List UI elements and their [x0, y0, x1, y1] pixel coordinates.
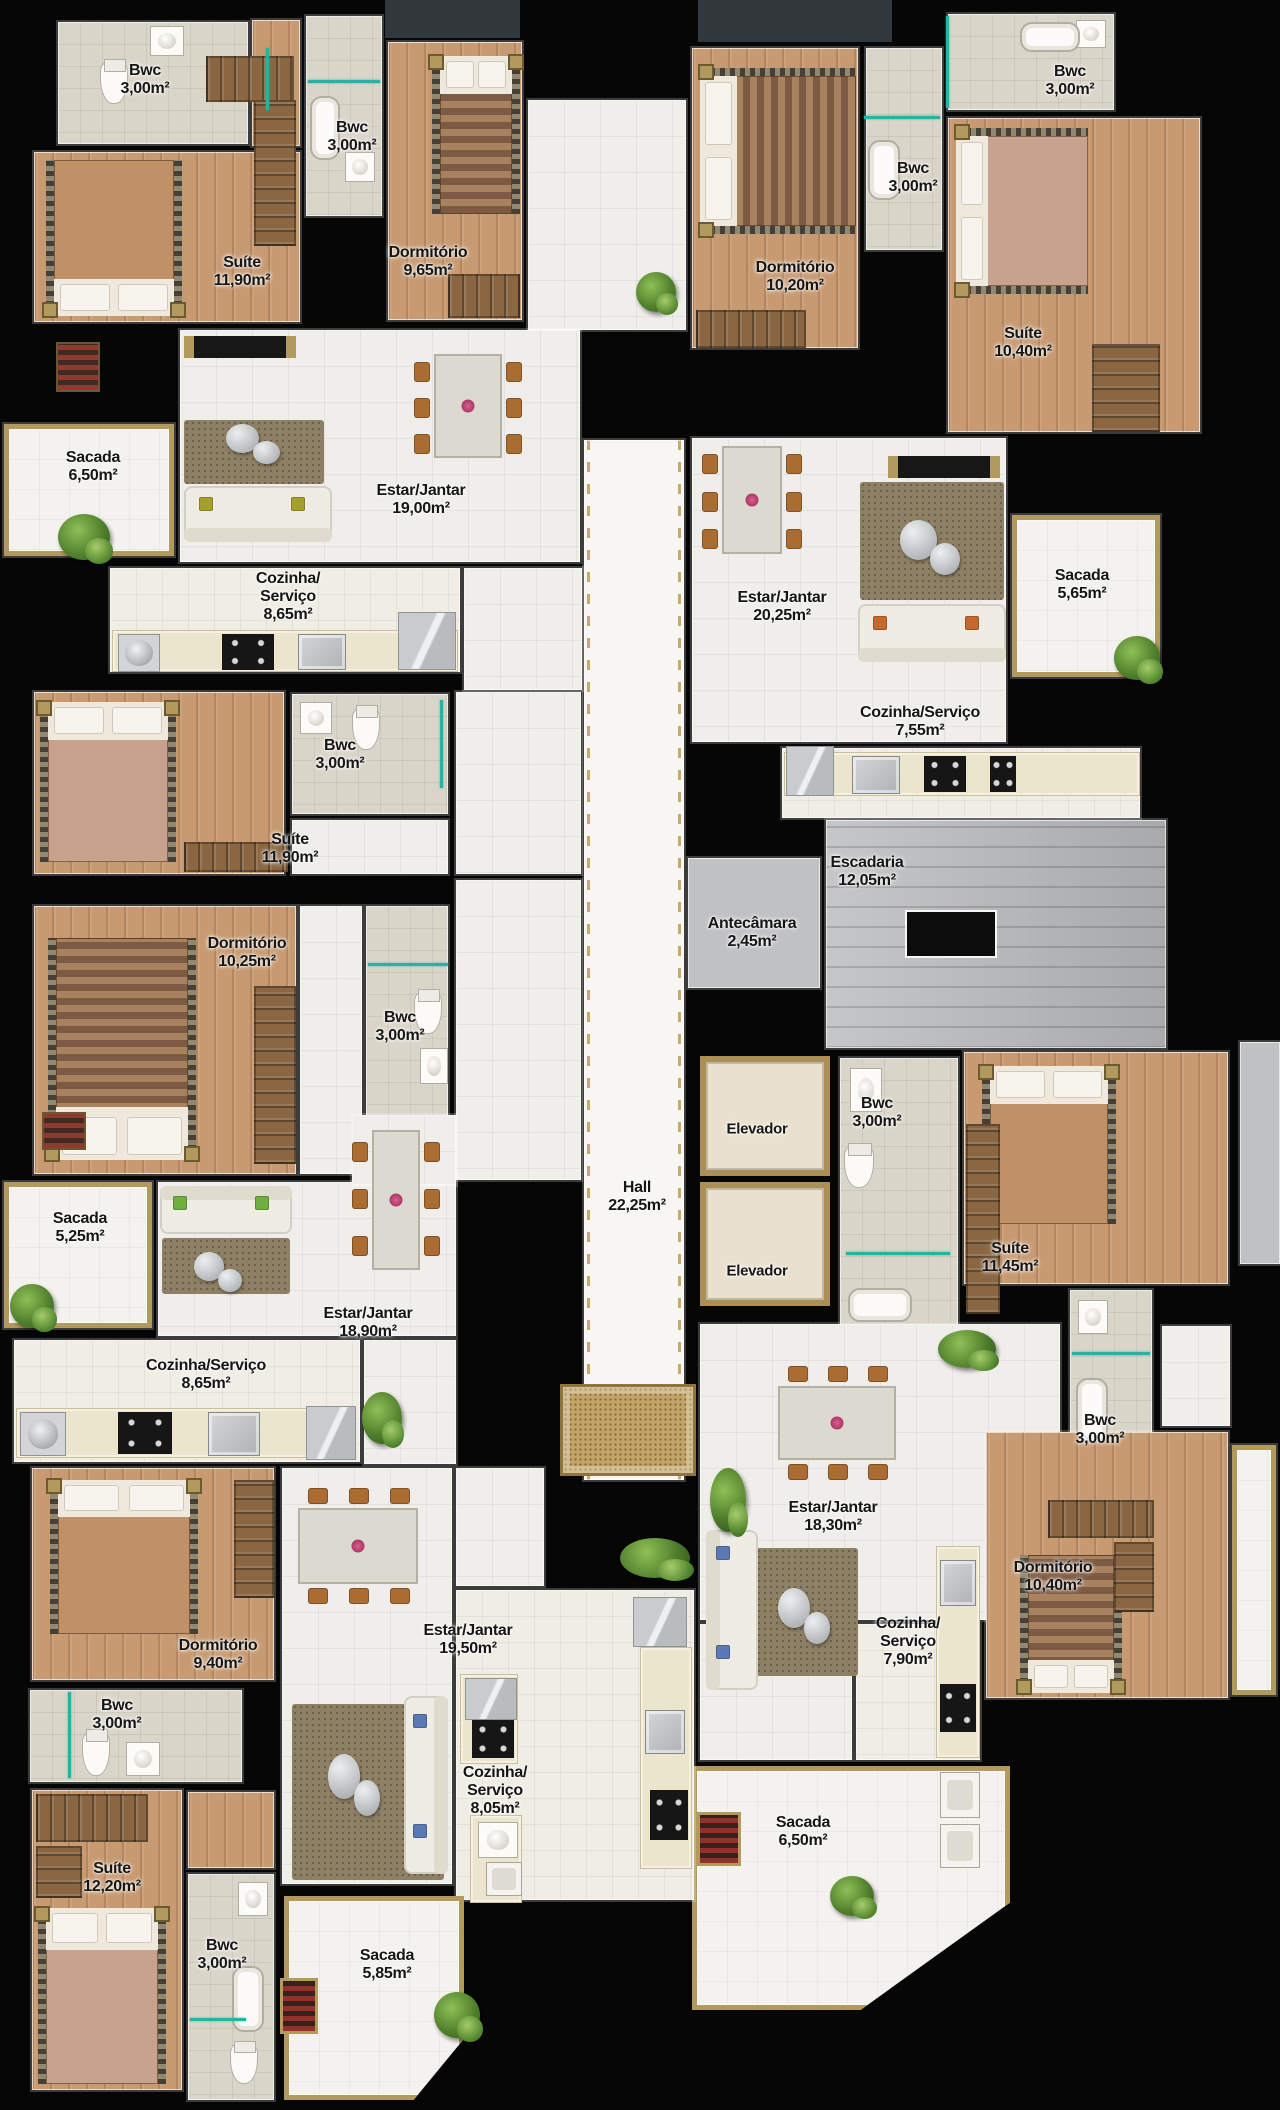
sinksq-icon: [300, 702, 332, 734]
sink-bowl-icon: [487, 1830, 508, 1849]
teal-icon: [368, 963, 448, 966]
label-line: 3,00m²: [328, 137, 377, 155]
label-line: 18,30m²: [789, 1517, 878, 1535]
label-line: Bwc: [121, 62, 170, 80]
pillow-icon: [705, 82, 732, 145]
label-line: 3,00m²: [853, 1113, 902, 1131]
label-escadaria: Escadaria12,05m²: [831, 854, 904, 890]
chair-icon: [308, 1588, 328, 1604]
sinksq-icon: [478, 1822, 518, 1858]
sink-icon: [645, 1710, 685, 1754]
chair-icon: [702, 454, 718, 474]
label-line: 10,25m²: [208, 953, 287, 971]
label-coz-e: Cozinha/Serviço8,05m²: [463, 1764, 527, 1818]
label-line: 6,50m²: [66, 467, 120, 485]
plant-icon: [710, 1468, 746, 1532]
label-line: Cozinha/Serviço: [860, 704, 980, 722]
teal-icon: [440, 700, 443, 788]
sink-bowl-icon: [352, 159, 368, 175]
label-line: Cozinha/: [256, 570, 320, 588]
label-dorm-a: Dormitório9,65m²: [389, 244, 468, 280]
stove-icon: [990, 756, 1016, 792]
rack-icon: [42, 1112, 86, 1150]
plant-icon: [58, 514, 110, 560]
nightstand-icon: [698, 222, 714, 238]
label-line: Dormitório: [389, 244, 468, 262]
sink-bowl-icon: [158, 33, 176, 49]
bed-pillows: [54, 707, 162, 734]
mat-icon: [560, 1384, 696, 1476]
wardrobe-icon: [696, 310, 806, 348]
label-line: 2,45m²: [708, 933, 797, 951]
label-line: Bwc: [198, 1937, 247, 1955]
throw-pillow-icon: [413, 1824, 427, 1838]
chair-icon: [868, 1366, 888, 1382]
label-coz-b: Cozinha/Serviço7,55m²: [860, 704, 980, 740]
sinksq-icon: [1078, 1300, 1108, 1334]
fridge-icon: [306, 1406, 356, 1460]
chair-icon: [506, 362, 522, 382]
sinksq-icon: [420, 1048, 448, 1084]
nightstand-icon: [36, 700, 52, 716]
plant-icon: [434, 1992, 480, 2038]
coffee-icon: [226, 424, 280, 464]
label-line: Estar/Jantar: [324, 1305, 413, 1323]
void-icon: [385, 0, 520, 38]
pillow-icon: [52, 1913, 98, 1943]
plant-icon: [636, 272, 676, 312]
wardrobe-icon: [206, 56, 294, 102]
label-line: 3,00m²: [889, 178, 938, 196]
label-line: Sacada: [53, 1210, 107, 1228]
teal-icon: [946, 16, 949, 108]
tub-icon: [1020, 22, 1080, 52]
label-sacada-e: Sacada5,85m²: [360, 1947, 414, 1983]
plant-leaf-icon: [656, 1559, 695, 1581]
label-line: Bwc: [1046, 63, 1095, 81]
chair-icon: [828, 1366, 848, 1382]
label-suite-d: Suíte11,45m²: [982, 1240, 1039, 1276]
throw-pillow-icon: [716, 1546, 730, 1560]
label-line: 12,20m²: [83, 1878, 141, 1896]
label-line: 10,20m²: [756, 277, 835, 295]
coffee-table-icon: [804, 1612, 830, 1644]
label-line: 9,40m²: [179, 1655, 258, 1673]
room-d-ledge: [1240, 1042, 1280, 1264]
wardrobe-icon: [1114, 1542, 1154, 1612]
label-sacada-d: Sacada6,50m²: [776, 1814, 830, 1850]
nightstand-icon: [170, 302, 186, 318]
wardrobe-icon: [254, 986, 296, 1164]
label-line: Bwc: [853, 1095, 902, 1113]
chair-icon: [352, 1236, 368, 1256]
sofa-backrest: [858, 648, 1006, 662]
wardrobe-icon: [448, 274, 520, 318]
plant-leaf-icon: [85, 538, 114, 563]
chair-icon: [702, 529, 718, 549]
wardrobe-icon: [1092, 344, 1160, 432]
room-a-foyer: [464, 568, 582, 690]
coffee-icon: [328, 1754, 380, 1816]
sinksq-icon: [345, 152, 375, 182]
label-line: Estar/Jantar: [789, 1499, 878, 1517]
label-sacada-a: Sacada6,50m²: [66, 449, 120, 485]
label-line: Serviço: [876, 1633, 940, 1651]
label-line: Estar/Jantar: [738, 589, 827, 607]
fridge-icon: [786, 746, 834, 796]
label-line: Suíte: [83, 1860, 141, 1878]
label-line: 11,45m²: [982, 1258, 1039, 1276]
nightstand-icon: [42, 302, 58, 318]
dining-icon: [702, 440, 802, 560]
label-sacada-c: Sacada5,25m²: [53, 1210, 107, 1246]
chair-icon: [414, 362, 430, 382]
chair-icon: [868, 1464, 888, 1480]
label-line: 3,00m²: [121, 80, 170, 98]
bed-pillows: [60, 284, 168, 311]
chair-icon: [352, 1189, 368, 1209]
pillow-icon: [112, 707, 162, 734]
handrail-icon: [907, 912, 995, 956]
bed-icon: [38, 1908, 166, 2084]
wardrobe-icon: [966, 1124, 1000, 1314]
bed-pillows: [961, 142, 983, 280]
nightstand-icon: [154, 1906, 170, 1922]
label-line: 5,85m²: [360, 1965, 414, 1983]
label-line: Bwc: [93, 1697, 142, 1715]
label-line: 20,25m²: [738, 607, 827, 625]
pillow-icon: [1074, 1665, 1108, 1688]
flower-centerpiece-icon: [390, 1194, 403, 1207]
pillow-icon: [60, 284, 110, 311]
plant-leaf-icon: [32, 1307, 56, 1331]
toilet-tank-icon: [234, 2041, 256, 2053]
chair-icon: [308, 1488, 328, 1504]
label-line: 8,05m²: [463, 1800, 527, 1818]
label-bwc-e1: Bwc3,00m²: [93, 1697, 142, 1733]
nightstand-icon: [164, 700, 180, 716]
sofa-icon: [706, 1530, 758, 1690]
label-line: 7,55m²: [860, 722, 980, 740]
tub-icon: [848, 1288, 912, 1322]
label-line: Bwc: [316, 737, 365, 755]
room-d-closet: [1162, 1326, 1230, 1426]
label-bwc-a1: Bwc3,00m²: [121, 62, 170, 98]
pillow-icon: [118, 284, 168, 311]
washer-icon: [118, 634, 160, 672]
nightstand-icon: [954, 124, 970, 140]
nightstand-icon: [698, 64, 714, 80]
chair-icon: [506, 398, 522, 418]
nightstand-icon: [184, 1146, 200, 1162]
laundry-tub-icon: [947, 1831, 974, 1860]
label-suite-e: Suíte12,20m²: [83, 1860, 141, 1896]
label-line: Elevador: [727, 1122, 788, 1139]
pillow-icon: [1053, 1071, 1102, 1098]
floor-plan-canvas: Bwc3,00m²Bwc3,00m²Suíte11,90m²Dormitório…: [0, 0, 1280, 2110]
label-line: Serviço: [463, 1782, 527, 1800]
pillow-icon: [446, 61, 474, 88]
flower-centerpiece-icon: [746, 494, 759, 507]
teal-icon: [846, 1252, 950, 1255]
throw-pillow-icon: [965, 616, 979, 630]
plant-icon: [830, 1876, 874, 1916]
label-coz-d: Cozinha/Serviço7,90m²: [876, 1615, 940, 1669]
stove-icon: [118, 1412, 172, 1454]
label-line: Sacada: [1055, 567, 1109, 585]
laundry-tub-icon: [947, 1780, 974, 1811]
label-dorm-c: Dormitório10,25m²: [208, 935, 287, 971]
fridge-icon: [398, 612, 456, 670]
sofa-icon: [160, 1186, 292, 1234]
sink-icon: [298, 634, 346, 670]
coffee-table-icon: [253, 441, 280, 464]
label-line: 9,65m²: [389, 262, 468, 280]
label-line: Sacada: [776, 1814, 830, 1832]
nightstand-icon: [978, 1064, 994, 1080]
room-e-suite2: [188, 1792, 274, 1868]
label-bwc-a2: Bwc3,00m²: [328, 119, 377, 155]
bed-icon: [50, 1480, 198, 1634]
label-bwc-d2: Bwc3,00m²: [1076, 1412, 1125, 1448]
bed-pillows: [1034, 1665, 1108, 1688]
pillow-icon: [1034, 1665, 1068, 1688]
pillow-icon: [478, 61, 506, 88]
washer-drum-icon: [125, 640, 153, 665]
teal-icon: [864, 116, 940, 119]
washer-icon: [20, 1412, 66, 1456]
room-c-foyer2: [456, 880, 581, 1180]
label-line: Bwc: [376, 1009, 425, 1027]
label-line: 3,00m²: [316, 755, 365, 773]
label-line: 3,00m²: [376, 1027, 425, 1045]
pillow-icon: [129, 1485, 184, 1511]
label-estar-d: Estar/Jantar18,30m²: [789, 1499, 878, 1535]
label-line: Bwc: [328, 119, 377, 137]
label-dorm-b: Dormitório10,20m²: [756, 259, 835, 295]
label-dorm-e: Dormitório9,40m²: [179, 1637, 258, 1673]
label-line: 5,25m²: [53, 1228, 107, 1246]
tv-icon: [184, 336, 296, 358]
pillow-icon: [106, 1913, 152, 1943]
nightstand-icon: [34, 1906, 50, 1922]
label-line: 19,50m²: [424, 1640, 513, 1658]
pillow-icon: [996, 1071, 1045, 1098]
label-bwc-e2: Bwc3,00m²: [198, 1937, 247, 1973]
wardrobe-icon: [254, 100, 296, 246]
nightstand-icon: [428, 54, 444, 70]
label-estar-c: Estar/Jantar18,90m²: [324, 1305, 413, 1341]
grill-icon: [280, 1978, 318, 2034]
label-line: Suíte: [214, 254, 271, 272]
nightstand-icon: [46, 1478, 62, 1494]
plant-leaf-icon: [457, 2016, 482, 2041]
label-line: 3,00m²: [1076, 1430, 1125, 1448]
chair-icon: [786, 529, 802, 549]
throw-pillow-icon: [413, 1714, 427, 1728]
chair-icon: [349, 1588, 369, 1604]
label-dorm-d: Dormitório10,40m²: [1014, 1559, 1093, 1595]
sinksq-icon: [238, 1882, 268, 1916]
label-sacada-b: Sacada5,65m²: [1055, 567, 1109, 603]
label-elevador-1: Elevador: [727, 1122, 788, 1139]
bed-icon: [982, 1066, 1116, 1224]
sink-bowl-icon: [245, 1890, 261, 1908]
pillow-icon: [961, 142, 983, 205]
laundry-tub-icon: [492, 1868, 516, 1890]
bed-pillows: [996, 1071, 1102, 1098]
label-line: Cozinha/: [876, 1615, 940, 1633]
label-line: Suíte: [262, 831, 319, 849]
teal-icon: [308, 80, 380, 83]
label-line: 11,90m²: [214, 272, 271, 290]
label-line: Sacada: [66, 449, 120, 467]
label-line: 11,90m²: [262, 849, 319, 867]
sink-icon: [940, 1560, 976, 1606]
dining-icon: [414, 348, 522, 464]
label-line: Escadaria: [831, 854, 904, 872]
teal-icon: [1072, 1352, 1150, 1355]
sink-bowl-icon: [1085, 1308, 1101, 1326]
label-line: Suíte: [982, 1240, 1039, 1258]
plant-icon: [1114, 636, 1160, 680]
label-line: 8,65m²: [256, 606, 320, 624]
nightstand-icon: [186, 1478, 202, 1494]
sink-bowl-icon: [308, 710, 325, 727]
bed-pillows: [52, 1913, 152, 1943]
room-c-foyer: [456, 692, 581, 874]
room-elev1: [700, 1056, 830, 1176]
throw-pillow-icon: [199, 497, 213, 511]
sofa-icon: [404, 1696, 448, 1874]
grill-icon: [697, 1812, 741, 1866]
fridge-icon: [633, 1597, 687, 1647]
chair-icon: [414, 398, 430, 418]
bed-icon: [46, 160, 182, 316]
laundry-icon: [940, 1824, 980, 1868]
label-estar-b: Estar/Jantar20,25m²: [738, 589, 827, 625]
throw-pillow-icon: [716, 1645, 730, 1659]
plant-leaf-icon: [852, 1897, 876, 1919]
plant-icon: [620, 1538, 690, 1578]
label-line: 6,50m²: [776, 1832, 830, 1850]
plant-icon: [362, 1392, 402, 1444]
pillow-icon: [64, 1485, 119, 1511]
fridge-icon: [465, 1678, 517, 1720]
flower-centerpiece-icon: [831, 1417, 844, 1430]
toilet-tank-icon: [848, 1143, 871, 1156]
pillow-icon: [54, 707, 104, 734]
chair-icon: [424, 1142, 440, 1162]
plant-icon: [938, 1330, 996, 1368]
teal-icon: [68, 1692, 71, 1778]
label-elevador-2: Elevador: [727, 1264, 788, 1281]
sink-bowl-icon: [134, 1750, 152, 1768]
label-line: 19,00m²: [377, 500, 466, 518]
bed-icon: [432, 56, 520, 214]
chair-icon: [788, 1366, 808, 1382]
throw-pillow-icon: [873, 616, 887, 630]
throw-pillow-icon: [255, 1196, 269, 1210]
tub-icon: [232, 1966, 264, 2032]
chair-icon: [786, 492, 802, 512]
chair-icon: [786, 454, 802, 474]
coffee-table-icon: [218, 1269, 242, 1292]
chair-icon: [414, 434, 430, 454]
label-line: Suíte: [994, 325, 1052, 343]
nightstand-icon: [1110, 1679, 1126, 1695]
wardrobe-icon: [36, 1794, 148, 1842]
throw-pillow-icon: [291, 497, 305, 511]
laundry-icon: [940, 1772, 980, 1818]
teal-icon: [190, 2018, 246, 2021]
sinksq-icon: [150, 26, 184, 56]
nightstand-icon: [1016, 1679, 1032, 1695]
room-hall: [584, 440, 684, 1480]
chair-icon: [390, 1588, 410, 1604]
chair-icon: [349, 1488, 369, 1504]
label-suite-a: Suíte11,90m²: [214, 254, 271, 290]
label-bwc-b1: Bwc3,00m²: [889, 160, 938, 196]
label-line: Cozinha/Serviço: [146, 1357, 266, 1375]
label-line: Bwc: [1076, 1412, 1125, 1430]
label-line: Serviço: [256, 588, 320, 606]
plant-leaf-icon: [1137, 659, 1162, 683]
throw-pillow-icon: [173, 1196, 187, 1210]
bed-icon: [956, 128, 1088, 294]
sink-bowl-icon: [427, 1056, 442, 1075]
label-line: Antecâmara: [708, 915, 797, 933]
pillow-icon: [705, 157, 732, 220]
label-line: Dormitório: [179, 1637, 258, 1655]
label-bwc-c2: Bwc3,00m²: [376, 1009, 425, 1045]
label-line: Estar/Jantar: [424, 1622, 513, 1640]
chair-icon: [424, 1189, 440, 1209]
laundry-icon: [486, 1862, 522, 1896]
coffee-icon: [900, 520, 960, 575]
chair-icon: [702, 492, 718, 512]
label-coz-c: Cozinha/Serviço8,65m²: [146, 1357, 266, 1393]
label-coz-a: Cozinha/Serviço8,65m²: [256, 570, 320, 624]
label-bwc-d1: Bwc3,00m²: [853, 1095, 902, 1131]
chair-icon: [788, 1464, 808, 1480]
label-line: Dormitório: [1014, 1559, 1093, 1577]
washer-drum-icon: [28, 1419, 59, 1448]
bed-pillows: [446, 61, 506, 88]
label-line: 5,65m²: [1055, 585, 1109, 603]
sink-icon: [852, 756, 900, 794]
wardrobe-icon: [36, 1846, 82, 1898]
coffee-icon: [194, 1252, 242, 1292]
dining-icon: [292, 1488, 424, 1604]
chair-icon: [828, 1464, 848, 1480]
sink-icon: [208, 1412, 260, 1456]
label-line: 10,40m²: [1014, 1577, 1093, 1595]
room-e-foyer: [456, 1468, 544, 1586]
sinksq-icon: [1076, 20, 1106, 48]
tv-icon: [888, 456, 1000, 478]
chair-icon: [352, 1142, 368, 1162]
coffee-icon: [778, 1588, 830, 1644]
nightstand-icon: [508, 54, 524, 70]
label-line: 10,40m²: [994, 343, 1052, 361]
bed-icon: [40, 702, 176, 862]
toilet-tank-icon: [356, 705, 378, 718]
room-d-balc2: [1232, 1445, 1276, 1695]
coffee-table-icon: [354, 1780, 380, 1816]
label-line: 8,65m²: [146, 1375, 266, 1393]
pillow-icon: [961, 217, 983, 280]
